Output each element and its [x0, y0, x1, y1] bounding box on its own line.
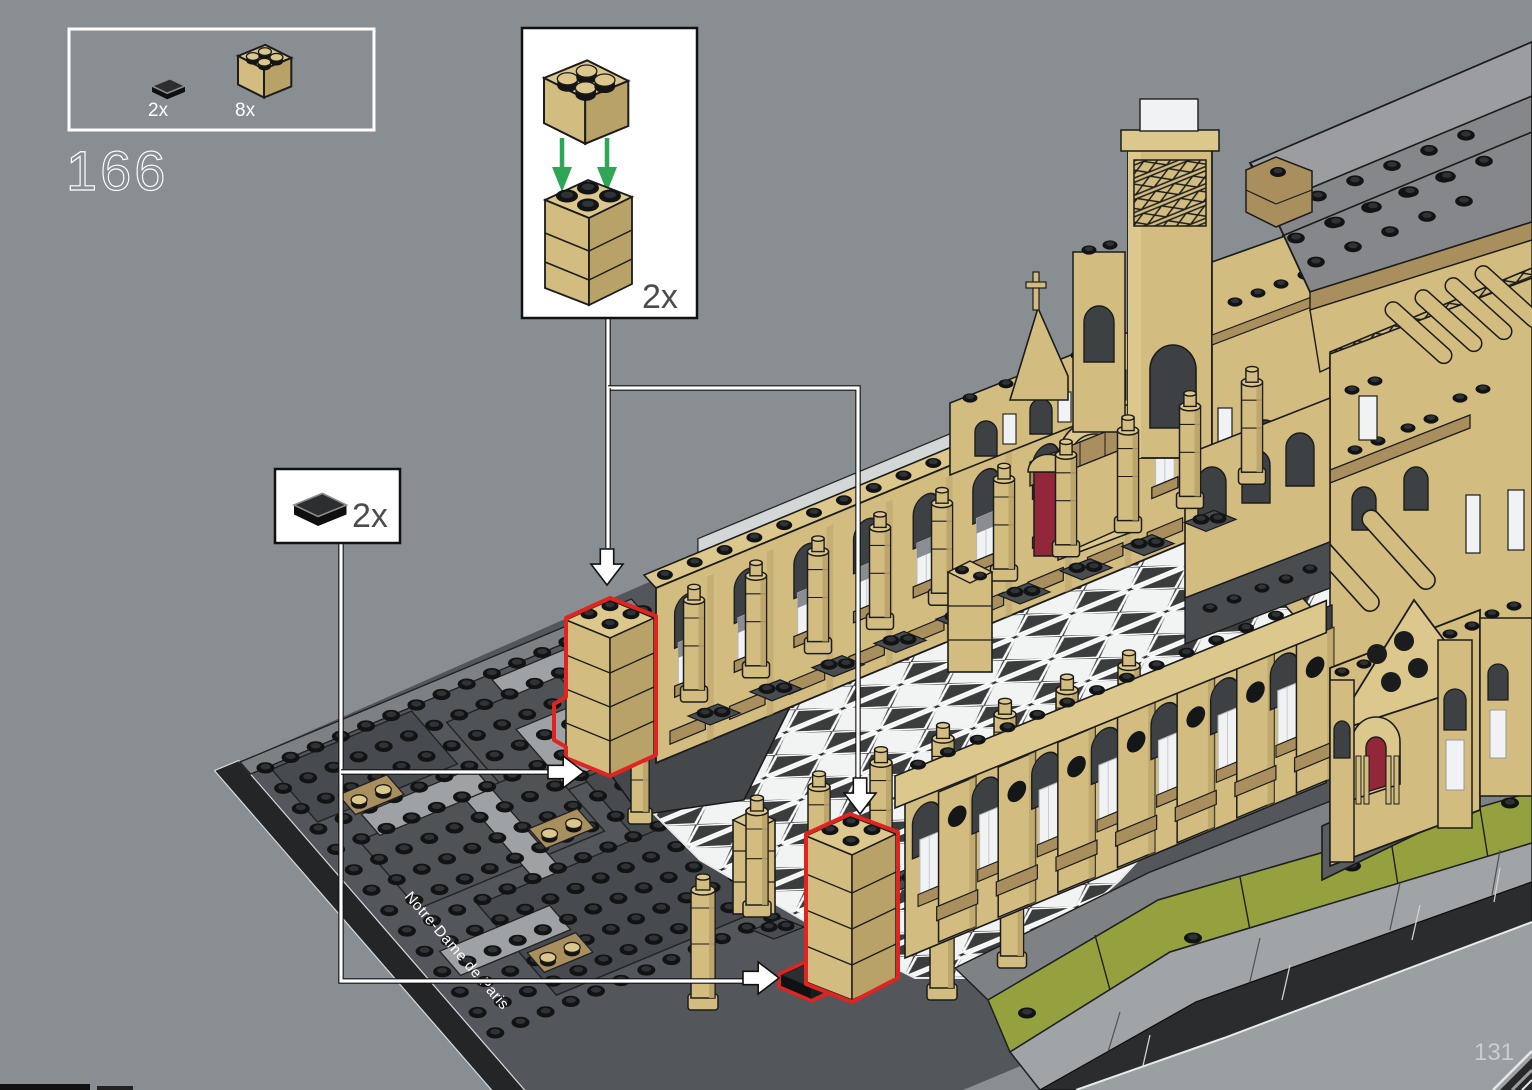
svg-text:131: 131	[1474, 1039, 1514, 1066]
svg-text:2x: 2x	[148, 100, 169, 121]
svg-text:166: 166	[66, 139, 168, 202]
svg-text:2x: 2x	[642, 278, 678, 316]
svg-text:8x: 8x	[235, 100, 256, 121]
svg-text:2x: 2x	[352, 497, 388, 535]
